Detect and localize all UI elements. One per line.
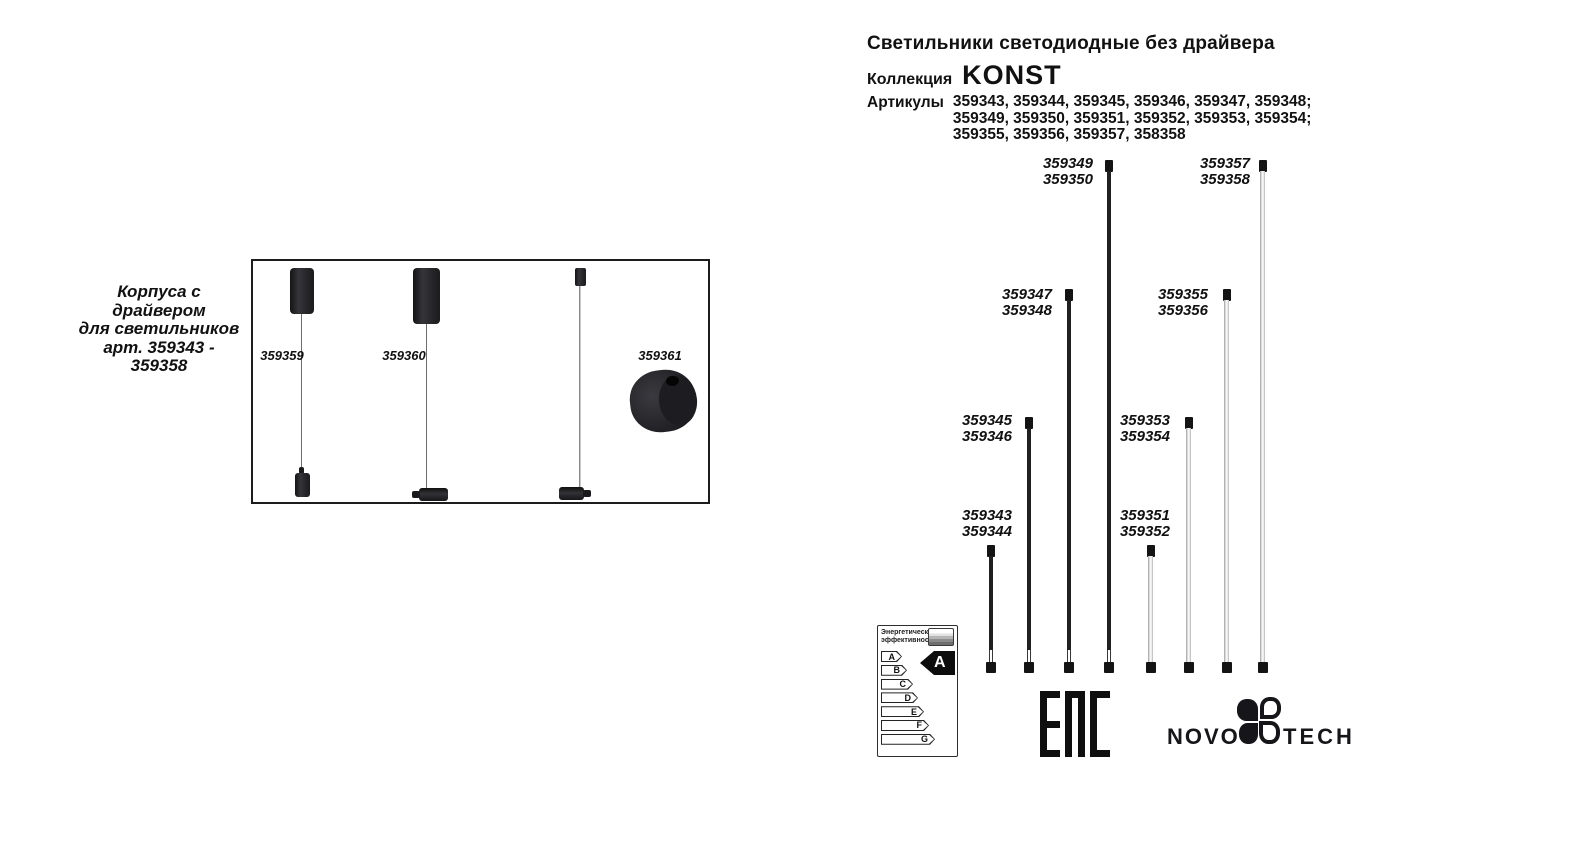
tube-359353-359354 — [1184, 417, 1194, 673]
pendant-canopy — [413, 268, 440, 324]
articles-label: Артикулы — [867, 94, 944, 144]
tube-label: 359343 359344 — [938, 508, 1012, 540]
brand-text-novo: NOVO — [1167, 724, 1240, 750]
brand-text-tech: TECH — [1283, 724, 1355, 750]
tube-label: 359353 359354 — [1096, 413, 1170, 445]
class-arrow-icon: G — [881, 734, 935, 745]
class-letter: A — [889, 652, 896, 662]
novotech-logo: NOVO TECH — [1167, 697, 1387, 749]
energy-rating-indicator: A — [920, 651, 955, 675]
suspension-holder-nub — [583, 490, 591, 497]
tube-label: 359347 359348 — [978, 287, 1052, 319]
tube-label: 359357 359358 — [1176, 156, 1250, 188]
suspension-holder — [559, 487, 584, 500]
class-arrow-icon: D — [881, 692, 918, 703]
collection-name: KONST — [962, 60, 1062, 91]
kit-item-label: 359360 — [379, 348, 429, 363]
tube-359351-359352 — [1146, 545, 1156, 673]
article-number: 359357 — [1176, 156, 1250, 172]
class-letter: E — [911, 707, 917, 717]
tube-bottom-cap — [1222, 662, 1232, 673]
clover-petal — [1260, 697, 1281, 719]
class-arrow-icon: B — [881, 665, 907, 676]
tube-body — [1067, 300, 1071, 663]
page-title: Светильники светодиодные без драйвера — [867, 33, 1467, 55]
class-letter: G — [921, 734, 928, 744]
driver-kit-annotation: Корпуса с драйвером для светильников арт… — [75, 283, 243, 376]
article-number: 359349 — [1019, 156, 1093, 172]
article-number: 359350 — [1019, 172, 1093, 188]
article-number: 359355 — [1134, 287, 1208, 303]
tube-body — [1186, 428, 1191, 663]
tube-bottom-cap — [1024, 662, 1034, 673]
clover-petal — [1259, 721, 1280, 744]
kit-item-label: 359359 — [257, 348, 307, 363]
articles-line-1: 359343, 359344, 359345, 359346, 359347, … — [953, 94, 1312, 111]
tube-359357-359358 — [1258, 160, 1268, 673]
tube-bottom-cap — [1064, 662, 1074, 673]
clover-petal — [1237, 699, 1258, 721]
tube-bottom-cap — [1184, 662, 1194, 673]
tube-label: 359351 359352 — [1096, 508, 1170, 540]
annotation-line-1: Корпуса с драйвером — [75, 283, 243, 320]
tube-359343-359344 — [986, 545, 996, 673]
class-arrow-icon: C — [881, 679, 913, 690]
pendant-socket — [295, 473, 310, 497]
article-number: 359358 — [1176, 172, 1250, 188]
article-number: 359345 — [938, 413, 1012, 429]
tube-bottom-cap — [1258, 662, 1268, 673]
article-number: 359344 — [938, 524, 1012, 540]
class-letter: C — [900, 679, 907, 689]
suspension-cap — [575, 268, 586, 286]
articles-row: Артикулы 359343, 359344, 359345, 359346,… — [867, 94, 1467, 144]
tube-359347-359348 — [1064, 289, 1074, 673]
pendant-cord — [301, 314, 302, 467]
articles-line-2: 359349, 359350, 359351, 359352, 359353, … — [953, 111, 1312, 128]
tube-359355-359356 — [1222, 289, 1232, 673]
tube-label: 359345 359346 — [938, 413, 1012, 445]
class-letter: B — [894, 665, 901, 675]
tube-body — [989, 556, 993, 663]
article-number: 359351 — [1096, 508, 1170, 524]
energy-efficiency-label: Энергетическая эффективность A B C D E F — [877, 625, 958, 757]
class-letter: F — [917, 720, 923, 730]
annotation-line-2: для светильников — [75, 320, 243, 339]
annotation-line-3: арт. 359343 - 359358 — [75, 339, 243, 376]
rating-letter: A — [934, 654, 946, 672]
tube-label: 359349 359350 — [1019, 156, 1093, 188]
eac-letter-e — [1040, 691, 1060, 757]
pendant-holder-nub — [412, 491, 420, 498]
article-number: 359347 — [978, 287, 1052, 303]
header: Светильники светодиодные без драйвера Ко… — [867, 33, 1467, 144]
article-number: 359348 — [978, 303, 1052, 319]
tube-body — [1027, 428, 1031, 663]
class-letter: D — [905, 693, 912, 703]
article-number: 359353 — [1096, 413, 1170, 429]
energy-scale-gradient-icon — [928, 628, 954, 646]
eac-certification-icon — [1040, 691, 1112, 757]
pendant-holder — [419, 488, 448, 501]
collection-row: Коллекция KONST — [867, 60, 1467, 91]
tube-body — [1224, 300, 1229, 663]
suspension-cord — [579, 286, 581, 487]
articles-line-3: 359355, 359356, 359357, 358358 — [953, 127, 1312, 144]
driver-housing-359361-drawing — [627, 367, 699, 436]
pendant-canopy — [290, 268, 314, 314]
tube-body — [1260, 171, 1265, 663]
driver-kit-box: 359359 359360 359361 — [251, 259, 710, 504]
tube-body — [1148, 556, 1153, 663]
clover-petal — [1239, 723, 1258, 744]
tube-359345-359346 — [1024, 417, 1034, 673]
articles-list: 359343, 359344, 359345, 359346, 359347, … — [953, 94, 1312, 144]
class-arrow-icon: A — [881, 651, 902, 662]
class-arrow-icon: F — [881, 720, 929, 731]
article-number: 359346 — [938, 429, 1012, 445]
article-number: 359356 — [1134, 303, 1208, 319]
eac-letter-c — [1090, 691, 1110, 757]
eac-letter-a — [1065, 691, 1085, 757]
tube-label: 359355 359356 — [1134, 287, 1208, 319]
article-number: 359352 — [1096, 524, 1170, 540]
kit-item-label: 359361 — [635, 348, 685, 363]
collection-label: Коллекция — [867, 71, 952, 89]
article-number: 359343 — [938, 508, 1012, 524]
tube-bottom-cap — [1146, 662, 1156, 673]
novotech-clover-icon — [1237, 697, 1282, 747]
tube-bottom-cap — [986, 662, 996, 673]
class-arrow-icon: E — [881, 706, 924, 717]
article-number: 359354 — [1096, 429, 1170, 445]
tube-bottom-cap — [1104, 662, 1114, 673]
